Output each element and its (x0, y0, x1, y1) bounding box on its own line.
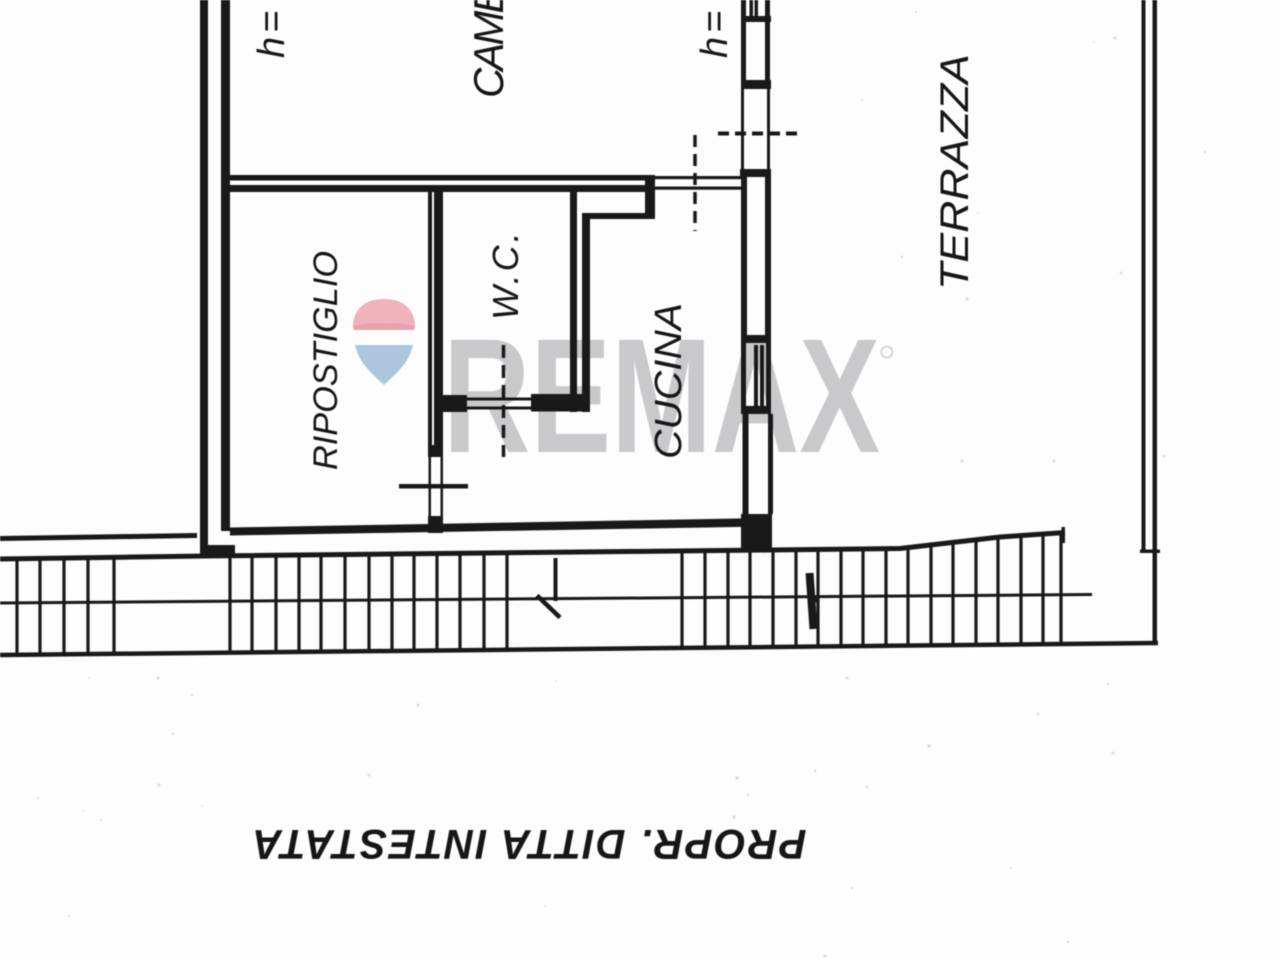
svg-text:TERRAZZA: TERRAZZA (933, 54, 977, 290)
svg-text:CUCINA: CUCINA (648, 303, 690, 459)
svg-text:h=: h= (251, 7, 293, 58)
svg-text:PROPR. DITTA INTESTATA: PROPR. DITTA INTESTATA (251, 821, 807, 868)
svg-text:h=: h= (694, 7, 736, 58)
svg-text:CAMERA: CAMERA (465, 0, 512, 98)
svg-text:W.C.: W.C. (485, 229, 526, 320)
svg-text:RIPOSTIGLIO: RIPOSTIGLIO (307, 251, 345, 470)
